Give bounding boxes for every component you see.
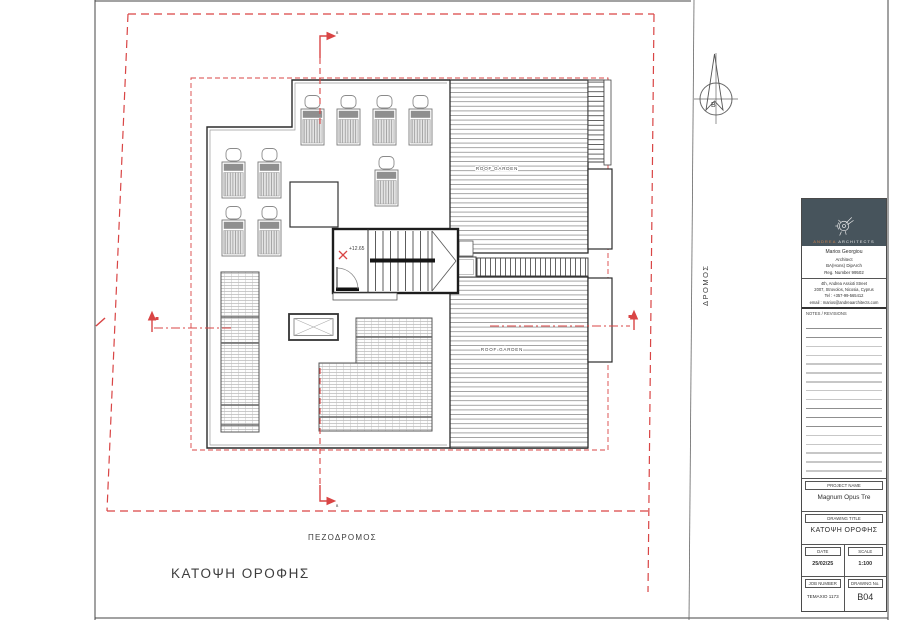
architect-title: Architect: [802, 257, 886, 264]
email: email : marios@andreaarchitects.com: [802, 300, 886, 306]
drawing-no-field: DRAWING No. B04: [844, 577, 887, 611]
north-letter: B: [711, 102, 716, 109]
balcony-projection-upper: [588, 169, 612, 249]
section-letter-top: B: [336, 31, 339, 35]
notes-ruled-lines: [806, 320, 882, 474]
drawing-title-field: DRAWING TITLE ΚΑΤΟΨΗ ΟΡΟΦΗΣ: [802, 512, 886, 546]
project-name-field: PROJECT NAME Magnum Opus Tre: [802, 479, 886, 512]
roof-garden-top-label: ROOF GARDEN: [476, 166, 518, 171]
date-field: DATE 25/02/25: [802, 545, 844, 576]
logo-panel: ANDREA ARCHITECTS: [802, 199, 886, 246]
external-stair-right: [588, 80, 611, 165]
skylight: [290, 182, 338, 227]
stair-core: +12.65: [333, 229, 458, 300]
roof-garden-bottom: ROOF GARDEN: [450, 277, 588, 448]
project-name-value: Magnum Opus Tre: [802, 491, 886, 505]
notes-label: NOTES / REVISIONS: [806, 311, 847, 316]
roof-garden-top: ROOF GARDEN: [450, 80, 588, 253]
job-number-field: JOB NUMBER ΤΕΜΑΧΙΟ 1173: [802, 577, 844, 611]
architect-registration: Reg. Number 99502: [802, 270, 886, 277]
drawing-no-label: DRAWING No.: [848, 579, 884, 588]
date-scale-row: DATE 25/02/25 SCALE 1:100: [802, 545, 886, 577]
architects-logo-icon: [831, 214, 857, 238]
planter-left: [221, 272, 259, 432]
level-marker-label: +12.65: [349, 246, 365, 252]
scale-value: 1:100: [845, 557, 887, 572]
roof-garden-bottom-label: ROOF GARDEN: [481, 347, 523, 352]
drawing-title-value: ΚΑΤΟΨΗ ΟΡΟΦΗΣ: [802, 524, 886, 539]
architect-qualification: BA(Hons) DipArch: [802, 263, 886, 270]
project-name-label: PROJECT NAME: [805, 481, 883, 490]
job-drawingno-row: JOB NUMBER ΤΕΜΑΧΙΟ 1173 DRAWING No. B04: [802, 577, 886, 611]
roof-plan-drawing: ROOF GARDEN ROOF GARDEN: [0, 0, 900, 620]
roof-hatch-x: [289, 314, 338, 340]
job-number-value: ΤΕΜΑΧΙΟ 1173: [802, 589, 844, 604]
drawing-sheet: ROOF GARDEN ROOF GARDEN: [0, 0, 900, 620]
street-label: ΠΕΖΟΔΡΟΜΟΣ: [308, 533, 377, 542]
scale-field: SCALE 1:100: [844, 545, 887, 576]
architect-info: Marios Georgiou Architect BA(Hons) DipAr…: [802, 246, 886, 279]
architect-name: Marios Georgiou: [802, 249, 886, 257]
scale-label: SCALE: [848, 547, 884, 556]
title-block: ANDREA ARCHITECTS Marios Georgiou Archit…: [801, 198, 887, 612]
brand-primary: ANDREA: [813, 239, 836, 244]
drawing-title-label: DRAWING TITLE: [805, 514, 883, 523]
plan-title: ΚΑΤΟΨΗ ΟΡΟΦΗΣ: [171, 566, 310, 581]
road-label: ΔΡΟΜΟΣ: [701, 264, 710, 306]
brand-secondary: ARCHITECTS: [838, 239, 875, 244]
balcony-projection-lower: [588, 278, 612, 362]
drawing-no-value: B04: [845, 589, 887, 604]
notes-revisions: NOTES / REVISIONS: [802, 309, 886, 479]
section-letter-bottom: B: [336, 504, 339, 508]
contact-info: 4th, Andrea Assioti Street 2007, Strovol…: [802, 279, 886, 309]
north-arrow-icon: B: [694, 53, 738, 124]
date-label: DATE: [805, 547, 841, 556]
job-number-label: JOB NUMBER: [805, 579, 841, 588]
date-value: 25/02/25: [802, 557, 844, 572]
brand-name: ANDREA ARCHITECTS: [813, 239, 875, 244]
